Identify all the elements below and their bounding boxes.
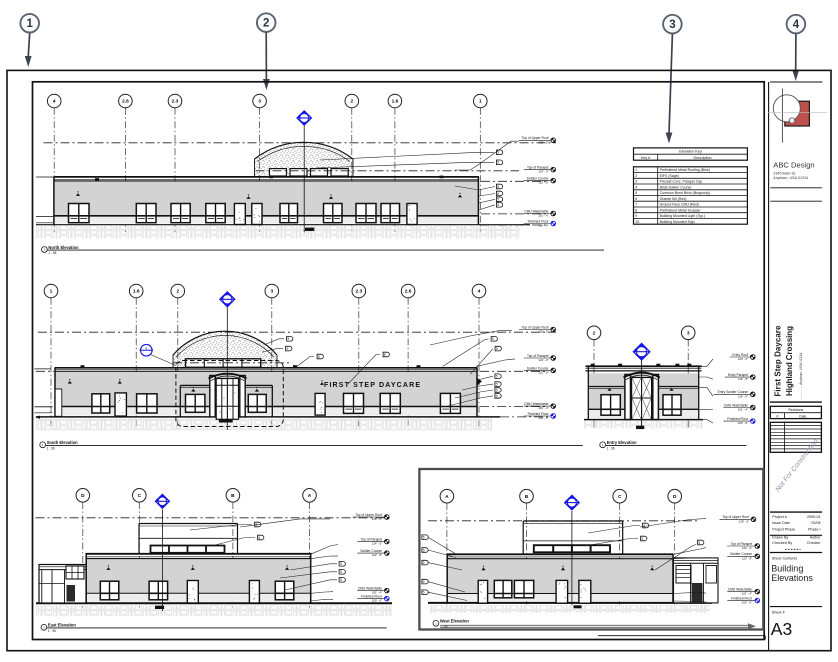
svg-text:D: D: [81, 493, 85, 499]
svg-text:101' - 4": 101' - 4": [738, 408, 748, 412]
svg-text:Entry Elevation: Entry Elevation: [607, 440, 637, 445]
svg-text:122' - 8": 122' - 8": [538, 181, 548, 185]
svg-text:5: 5: [641, 537, 643, 541]
svg-text:5: 5: [384, 353, 386, 357]
svg-text:Granite Sill (Red): Granite Sill (Red): [660, 197, 687, 201]
svg-text:- - - - - - - Anytown, USA 01: - - - - - - - Anytown, USA 01234: [799, 353, 803, 399]
svg-text:1.6: 1.6: [392, 99, 399, 105]
svg-text:Elevation Key: Elevation Key: [679, 150, 702, 154]
svg-text:First Step Daycare: First Step Daycare: [774, 325, 783, 397]
svg-text:1: 1: [26, 18, 33, 30]
svg-text:Description: Description: [694, 156, 712, 160]
svg-text:2.6: 2.6: [405, 289, 412, 295]
svg-text:Ground Face CMU (Red): Ground Face CMU (Red): [660, 203, 699, 207]
svg-text:5: 5: [340, 570, 342, 574]
svg-text:5: 5: [497, 198, 499, 202]
svg-text:5: 5: [423, 591, 425, 595]
svg-text:116' - 8": 116' - 8": [738, 377, 748, 381]
svg-text:1 : 96: 1 : 96: [48, 251, 56, 255]
svg-text:East Elevation: East Elevation: [48, 623, 76, 628]
svg-text:Drawn By: Drawn By: [772, 536, 788, 540]
svg-text:4: 4: [635, 185, 637, 189]
svg-text:3: 3: [687, 331, 690, 337]
svg-text:120' - 0": 120' - 0": [738, 357, 748, 361]
svg-text:8: 8: [635, 208, 637, 212]
svg-text:2345 Main St.: 2345 Main St.: [773, 171, 796, 175]
svg-text:9: 9: [635, 214, 637, 218]
svg-text:10: 10: [635, 220, 639, 224]
svg-text:7: 7: [635, 203, 637, 207]
svg-text:5: 5: [258, 536, 260, 540]
svg-text:5: 5: [496, 388, 498, 392]
svg-text:128' - 0": 128' - 0": [739, 519, 749, 523]
svg-text:Brick Soldier Course: Brick Soldier Course: [660, 185, 692, 189]
svg-text:South Elevation: South Elevation: [47, 440, 78, 445]
svg-text:5: 5: [423, 580, 425, 584]
svg-text:B: B: [231, 493, 235, 499]
svg-text:100' - 0": 100' - 0": [742, 601, 752, 605]
svg-text:Issue Date: Issue Date: [772, 521, 790, 525]
svg-text:2009-01: 2009-01: [807, 515, 821, 519]
svg-text:5: 5: [497, 203, 499, 207]
svg-text:Sheet Contents: Sheet Contents: [772, 557, 798, 561]
svg-text:122' - 8": 122' - 8": [372, 553, 382, 557]
svg-text:6: 6: [635, 197, 637, 201]
svg-text:101' - 4": 101' - 4": [742, 592, 752, 596]
svg-text:100' - 0": 100' - 0": [738, 421, 748, 425]
svg-text:124' - 0": 124' - 0": [742, 546, 752, 550]
svg-text:1.6: 1.6: [133, 289, 140, 295]
svg-text:3: 3: [635, 180, 637, 184]
svg-text:4: 4: [478, 289, 481, 295]
svg-text:122' - 8": 122' - 8": [742, 556, 752, 560]
svg-text:#: #: [776, 414, 778, 418]
svg-text:Building Mounted Light (Typ.): Building Mounted Light (Typ.): [660, 214, 706, 218]
svg-text:2: 2: [176, 289, 179, 295]
svg-text:3: 3: [258, 99, 261, 105]
svg-text:2.6: 2.6: [122, 99, 129, 105]
svg-text:2: 2: [635, 174, 637, 178]
svg-text:5: 5: [643, 524, 645, 528]
svg-text:Prefinished Metal Roofing (Blu: Prefinished Metal Roofing (Blue): [660, 168, 710, 172]
svg-text:100' - 0": 100' - 0": [372, 599, 382, 603]
svg-text:1: 1: [635, 168, 637, 172]
svg-text:5: 5: [497, 185, 499, 189]
svg-text:124' - 0": 124' - 0": [372, 542, 382, 546]
svg-text:3: 3: [669, 19, 675, 31]
svg-text:124' - 0": 124' - 0": [538, 170, 548, 174]
svg-text:Key #: Key #: [641, 156, 650, 160]
svg-text:Precast Conc. Parapet Cap: Precast Conc. Parapet Cap: [660, 180, 703, 184]
svg-text:5: 5: [423, 561, 425, 565]
svg-text:Project #: Project #: [772, 515, 788, 519]
svg-text:5: 5: [423, 536, 425, 540]
svg-text:5: 5: [423, 548, 425, 552]
svg-text:Phase I: Phase I: [808, 527, 821, 531]
svg-text:5: 5: [286, 347, 288, 351]
svg-text:114' - 0": 114' - 0": [738, 394, 748, 398]
svg-text:1: 1: [479, 99, 482, 105]
svg-text:Revisions: Revisions: [789, 408, 804, 412]
svg-text:4: 4: [793, 19, 800, 31]
svg-text:128' - 0": 128' - 0": [372, 517, 382, 521]
svg-text:4: 4: [145, 347, 147, 351]
svg-text:5: 5: [340, 578, 342, 582]
svg-text:100' - 0": 100' - 0": [538, 224, 548, 228]
svg-text:5: 5: [287, 337, 289, 341]
svg-text:Building Mounted Sign: Building Mounted Sign: [660, 220, 695, 224]
svg-text:100' - 0": 100' - 0": [538, 416, 548, 420]
svg-text:Project Phase: Project Phase: [772, 527, 795, 531]
svg-text:122' - 8": 122' - 8": [538, 371, 548, 375]
svg-text:1 : 96: 1 : 96: [607, 446, 615, 450]
svg-text:5: 5: [340, 562, 342, 566]
svg-text:5: 5: [496, 375, 498, 379]
svg-text:5: 5: [496, 347, 498, 351]
svg-text:5: 5: [318, 355, 320, 359]
svg-text:Anytown, USA 01234: Anytown, USA 01234: [773, 176, 808, 180]
svg-text:101' - 4": 101' - 4": [538, 406, 548, 410]
svg-text:5: 5: [496, 394, 498, 398]
svg-text:EIFS (Sage): EIFS (Sage): [660, 174, 679, 178]
svg-text:4: 4: [53, 99, 56, 105]
svg-text:124' - 0": 124' - 0": [538, 358, 548, 362]
svg-text:5: 5: [698, 541, 700, 545]
svg-text:North Elevation: North Elevation: [48, 245, 79, 250]
svg-text:101' - 4": 101' - 4": [538, 214, 548, 218]
svg-text:5: 5: [497, 192, 499, 196]
svg-text:Checker: Checker: [807, 541, 822, 545]
svg-text:128' - 0": 128' - 0": [538, 140, 548, 144]
svg-text:5: 5: [492, 337, 494, 341]
svg-text:2: 2: [350, 99, 353, 105]
svg-text:C: C: [138, 493, 142, 499]
svg-text:1 : 96: 1 : 96: [48, 629, 56, 633]
svg-text:Author: Author: [810, 536, 822, 540]
svg-text:Elevations: Elevations: [771, 573, 813, 583]
svg-text:C: C: [618, 494, 622, 500]
svg-text:Checked By: Checked By: [772, 541, 792, 545]
svg-text:Sheet #: Sheet #: [772, 610, 786, 614]
svg-text:A: A: [308, 493, 312, 499]
svg-text:Date: Date: [799, 414, 806, 418]
svg-text:1: 1: [50, 289, 53, 295]
svg-text:FIRST STEP DAYCARE: FIRST STEP DAYCARE: [324, 382, 420, 389]
svg-text:5: 5: [635, 191, 637, 195]
svg-text:B: B: [525, 494, 529, 500]
svg-text:1 : 96: 1 : 96: [47, 446, 55, 450]
svg-text:5: 5: [497, 161, 499, 165]
svg-text:D: D: [673, 494, 677, 500]
svg-text:3: 3: [270, 289, 273, 295]
svg-text:Building: Building: [771, 563, 803, 573]
svg-text:128' - 0": 128' - 0": [538, 330, 548, 334]
svg-text:Highland Crossing: Highland Crossing: [785, 326, 794, 396]
svg-text:West Elevation: West Elevation: [440, 619, 470, 624]
svg-text:5: 5: [496, 383, 498, 387]
svg-text:ABC Design: ABC Design: [773, 161, 814, 170]
svg-text:03/05: 03/05: [811, 521, 820, 525]
svg-text:2.3: 2.3: [172, 99, 179, 105]
svg-text:Common Bond Brick (Burgundy): Common Bond Brick (Burgundy): [660, 191, 710, 195]
svg-text:2.3: 2.3: [355, 289, 362, 295]
svg-text:2: 2: [263, 18, 269, 30]
svg-text:A: A: [445, 494, 449, 500]
svg-text:Prefinished Metal Scupper: Prefinished Metal Scupper: [660, 208, 702, 212]
svg-text:2: 2: [593, 331, 596, 337]
svg-text:A3: A3: [771, 619, 792, 639]
